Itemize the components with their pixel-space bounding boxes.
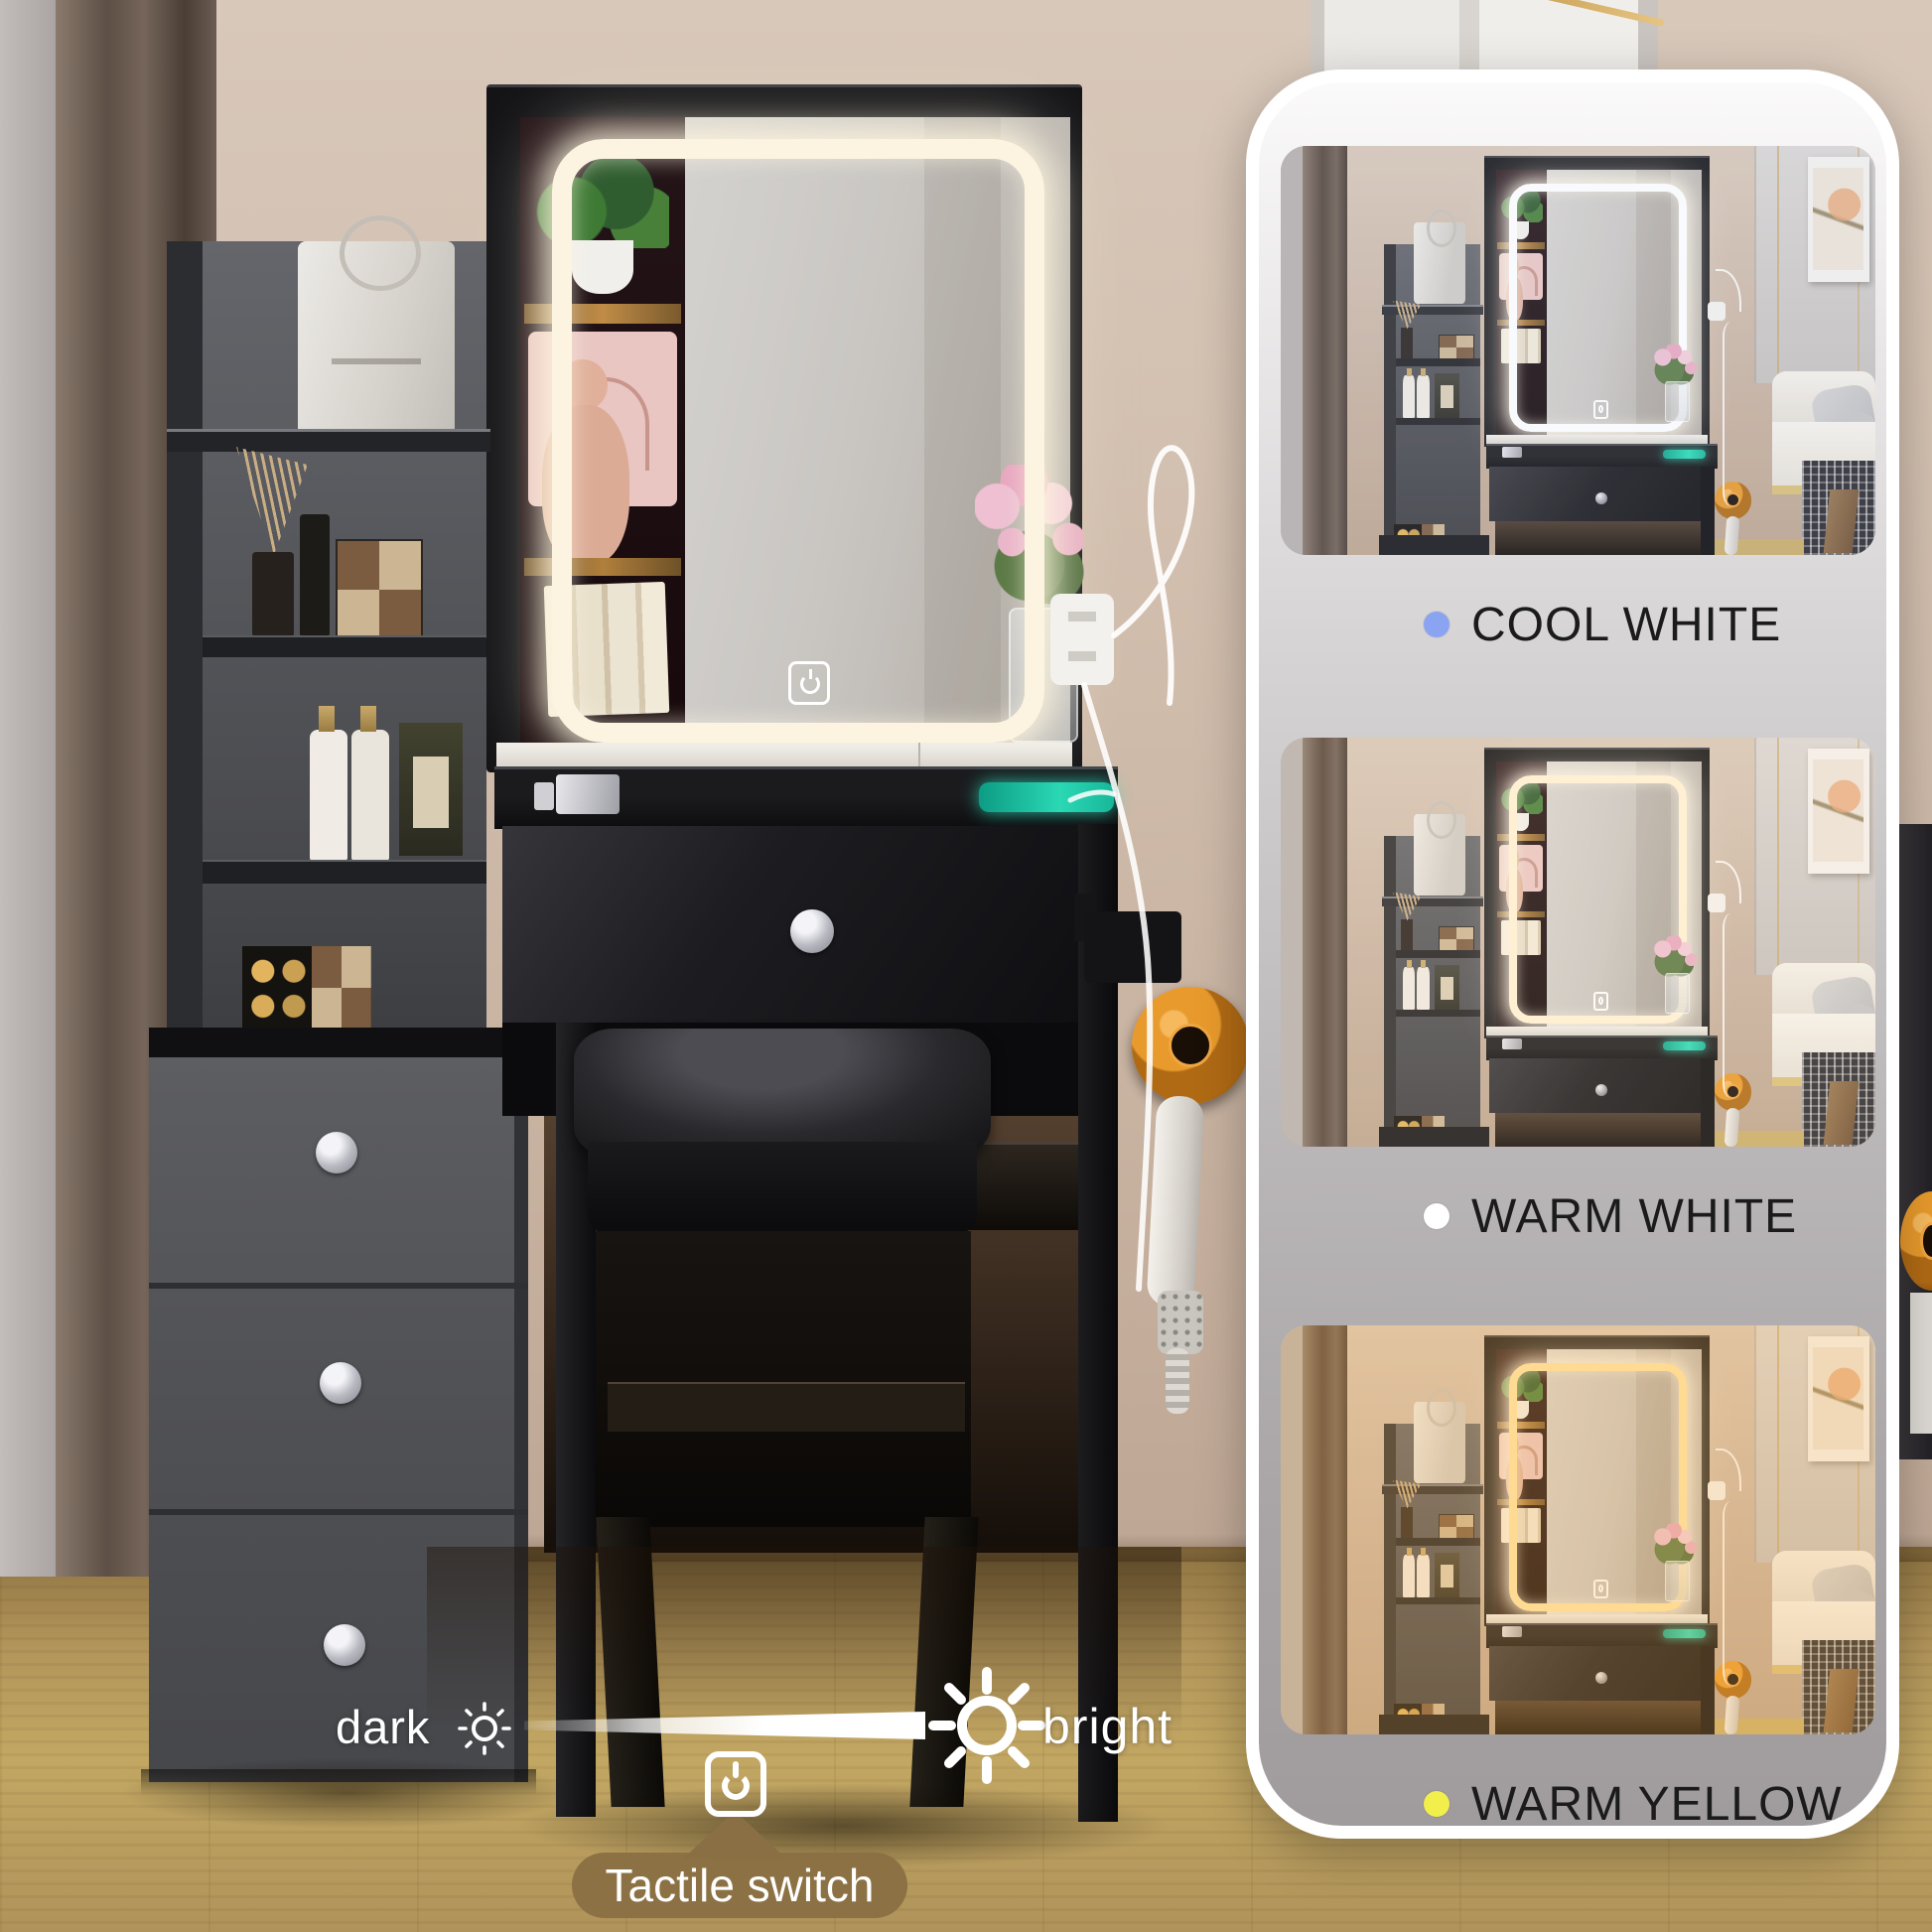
dark-label: dark [336,1700,430,1754]
touch-sensor-icon [788,661,830,705]
led-light-ring [552,139,1044,743]
warm-yellow-dot [1424,1791,1449,1817]
mode-block-cool-white: COOL WHITE [1281,146,1875,652]
drawer-knob [324,1624,365,1666]
mode-card: COOL WHITE [1246,69,1899,1839]
hair-dryer-ring [1132,987,1249,1104]
hair-dryer-handle [1146,1095,1204,1308]
dropper-bottle [300,514,330,637]
dim-sun-icon [453,1696,516,1761]
tactile-switch-badge: Tactile switch [572,1853,907,1918]
bag-logo [332,358,421,364]
stool-cushion [574,1029,991,1158]
cool-white-dot [1424,612,1449,637]
stool-body [596,1231,971,1527]
mode-thumbnail-cool-white [1281,146,1875,555]
usb-wall-plug [1050,594,1114,685]
drawer-seam [149,1283,528,1289]
hair-dryer-mesh-tip [1158,1291,1203,1354]
plug-slot [1068,651,1096,661]
tower-side-panel [167,241,203,1055]
lighting-tint-overlay [1281,146,1875,555]
tactile-switch-label: Tactile switch [606,1859,875,1912]
cosmetic-item [534,782,554,810]
perfume-flask [399,723,463,856]
diffuser-bottle [252,552,294,637]
lighting-tint-overlay [1281,738,1875,1147]
mode-block-warm-yellow: WARM YELLOW [1281,1325,1875,1832]
dryer-handle-right-edge [1910,1293,1932,1434]
plug-slot [1068,612,1096,621]
lighting-tint-overlay [1281,1325,1875,1734]
mode-block-warm-white: WARM WHITE [1281,738,1875,1244]
shopping-bag [298,241,455,436]
bright-sun-icon [927,1666,1046,1785]
mini-room-scene [1281,738,1875,1147]
mode-label-row: COOL WHITE [1281,597,1875,652]
power-bar [733,1761,739,1778]
mode-label: WARM YELLOW [1471,1777,1843,1832]
mode-thumbnail-warm-white [1281,738,1875,1147]
mode-label: COOL WHITE [1471,598,1781,652]
pump-bottle [310,730,347,861]
shelf-board [203,860,486,884]
silver-lighter [556,774,620,814]
charging-phone [979,782,1114,812]
power-switch-icon [705,1751,766,1817]
shelf-board [203,635,486,657]
mode-label-row: WARM WHITE [1281,1188,1875,1244]
drawer-seam [149,1509,528,1515]
touch-power-bar [809,669,812,679]
ledge-seam [918,743,920,768]
stool-seat-front [588,1142,977,1233]
floor-shadow [119,1757,576,1829]
mirror-ledge [496,743,1072,768]
mini-room-scene [1281,146,1875,555]
perfume-label [413,757,449,828]
pump-bottle [351,730,389,861]
hair-dryer-cord [1166,1348,1189,1414]
sheer-curtain [0,0,56,1577]
makeup-palette [336,539,423,640]
warm-white-dot [1424,1203,1449,1229]
mini-room-scene [1281,1325,1875,1734]
mode-label-row: WARM YELLOW [1281,1776,1875,1832]
cabinet-top [149,1028,528,1057]
mode-label: WARM WHITE [1471,1189,1797,1244]
bag-handle [340,215,421,291]
bright-label: bright [1042,1698,1173,1755]
dryer-holder [1084,911,1181,983]
tower-top-board [167,429,490,452]
stool-crossbar [608,1382,965,1432]
desk-drawer-knob [790,909,834,953]
drawer-knob [320,1362,361,1404]
mode-thumbnail-warm-yellow [1281,1325,1875,1734]
eyeshadow-palettes [242,946,371,1030]
drawer-knob [316,1132,357,1173]
product-marketing-image: dark bright Tactile switch [0,0,1932,1932]
